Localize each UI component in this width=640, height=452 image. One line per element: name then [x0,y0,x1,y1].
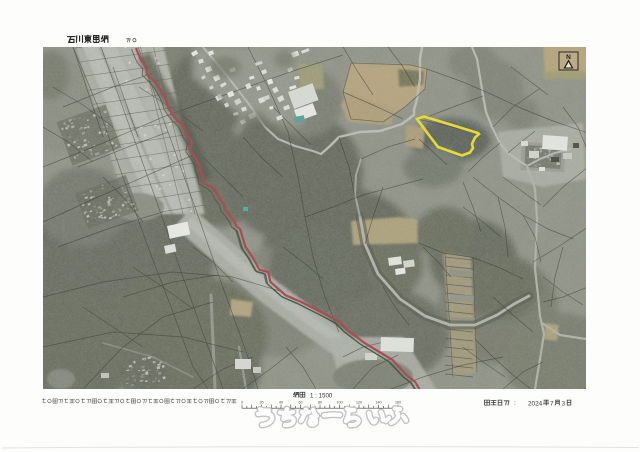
svg-text:20: 20 [260,400,264,404]
svg-text:1 : 1500: 1 : 1500 [310,392,333,399]
svg-text:2024: 2024 [528,400,543,407]
svg-text:0: 0 [241,400,243,404]
svg-text:120: 120 [356,400,362,404]
svg-text:100: 100 [337,400,343,404]
svg-text:60: 60 [299,400,303,404]
svg-text:160: 160 [395,400,401,404]
svg-text:140: 140 [376,400,382,404]
svg-text:7: 7 [550,400,554,407]
svg-text:80: 80 [318,400,322,404]
svg-text:3: 3 [562,400,566,407]
svg-text::: : [514,400,516,407]
svg-text:40: 40 [279,400,283,404]
